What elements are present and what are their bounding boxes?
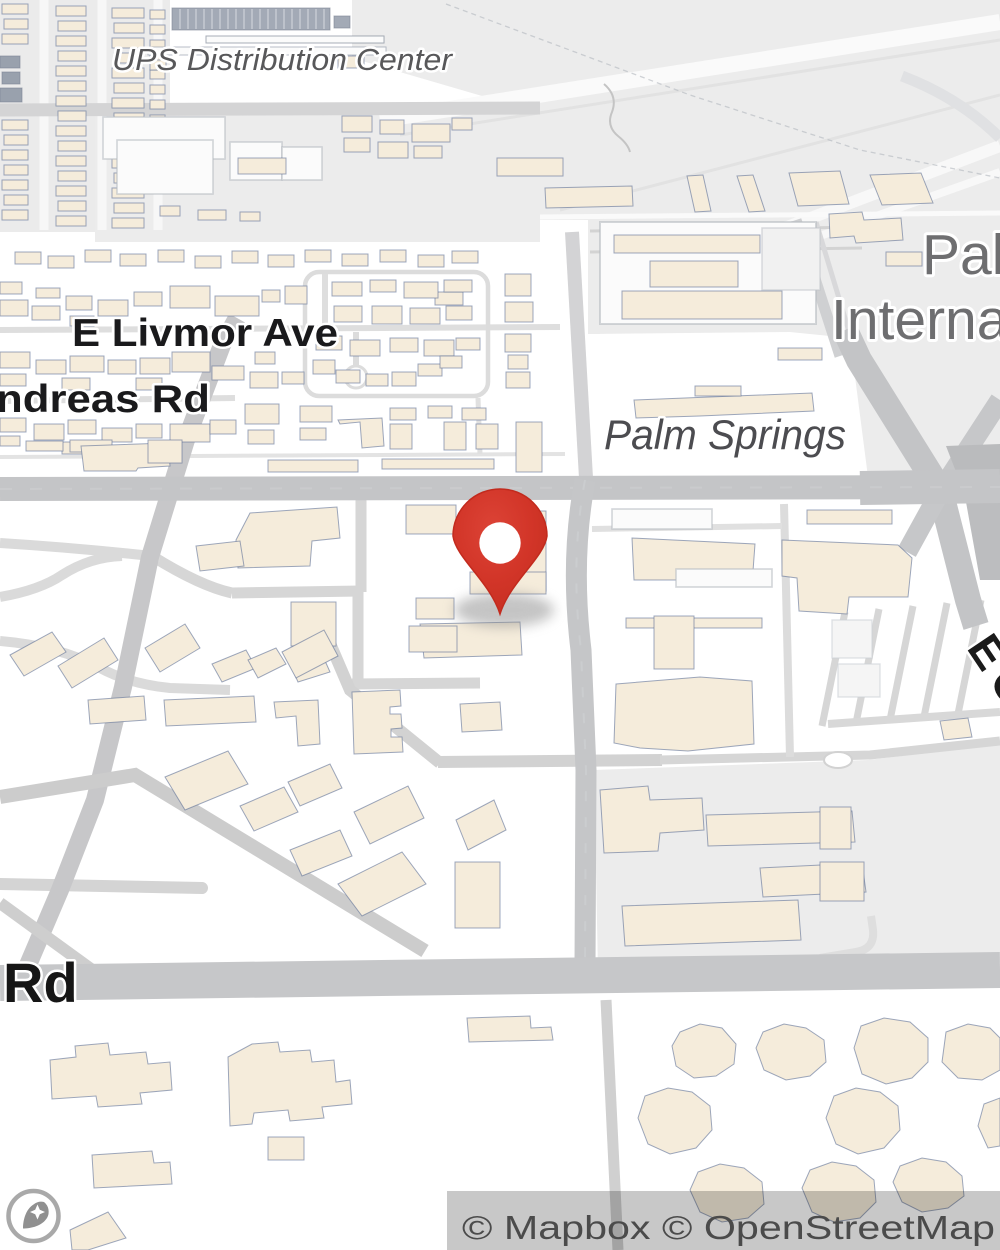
svg-text:Rd: Rd	[3, 951, 78, 1014]
svg-text:© Mapbox © OpenStreetMap: © Mapbox © OpenStreetMap	[462, 1209, 995, 1246]
svg-text:Palm Springs: Palm Springs	[604, 411, 846, 458]
svg-text:Palm: Palm	[922, 223, 1000, 287]
svg-text:ndreas Rd: ndreas Rd	[0, 378, 210, 421]
svg-text:UPS Distribution Center: UPS Distribution Center	[112, 42, 454, 77]
svg-text:Interna: Interna	[831, 288, 1000, 352]
svg-text:E Livmor Ave: E Livmor Ave	[72, 312, 338, 355]
